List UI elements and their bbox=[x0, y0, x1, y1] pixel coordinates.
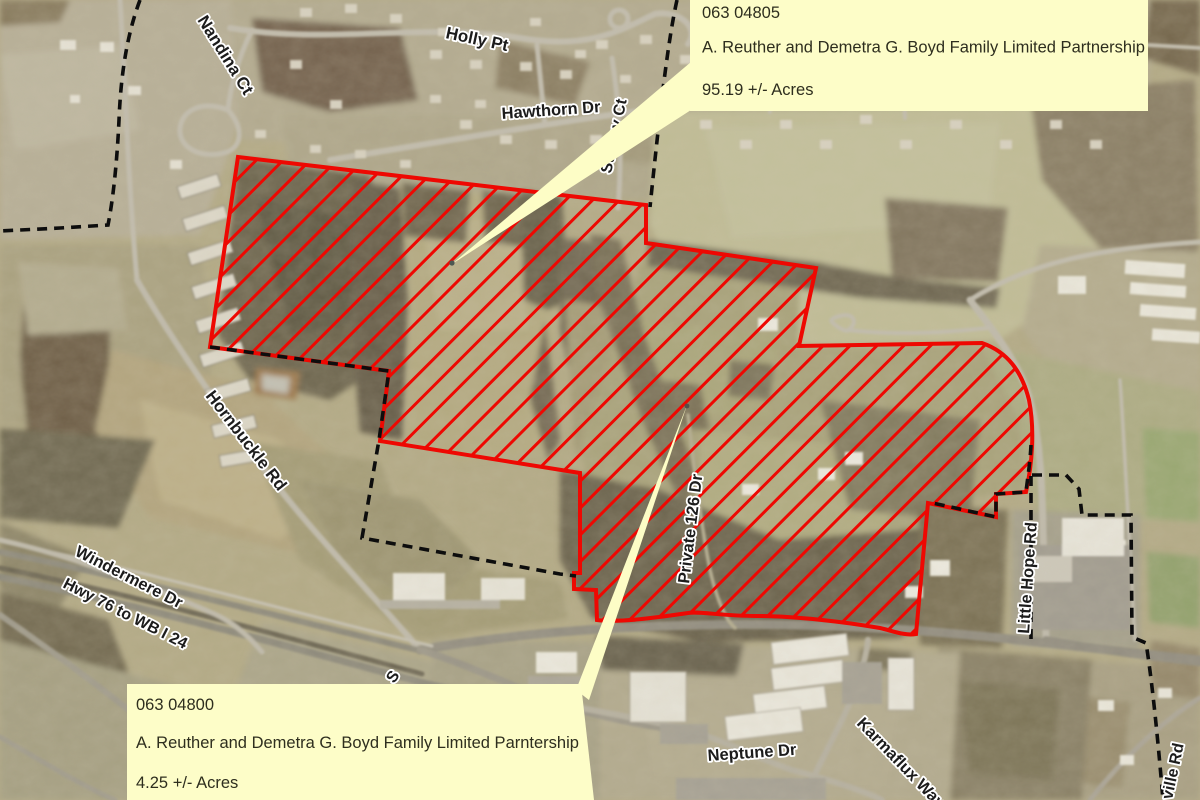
svg-text:A. Reuther and Demetra G. Boyd: A. Reuther and Demetra G. Boyd Family Li… bbox=[702, 39, 1145, 57]
svg-text:063 04800: 063 04800 bbox=[136, 696, 214, 714]
svg-text:4.25 +/- Acres: 4.25 +/- Acres bbox=[136, 774, 238, 792]
svg-text:95.19 +/- Acres: 95.19 +/- Acres bbox=[702, 81, 813, 99]
svg-text:A. Reuther and Demetra G. Boyd: A. Reuther and Demetra G. Boyd Family Li… bbox=[136, 734, 579, 752]
svg-text:063 04805: 063 04805 bbox=[702, 4, 780, 22]
